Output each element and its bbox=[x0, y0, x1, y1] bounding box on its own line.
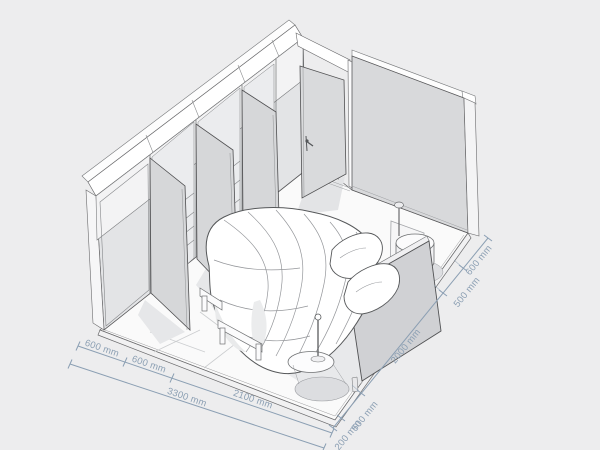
entrance-door bbox=[300, 66, 346, 198]
room-plan-canvas: 600 mm 600 mm 2100 mm 3300 mm 200 mm 500… bbox=[0, 0, 600, 450]
room-plan-drawing: 600 mm 600 mm 2100 mm 3300 mm 200 mm 500… bbox=[0, 0, 600, 450]
